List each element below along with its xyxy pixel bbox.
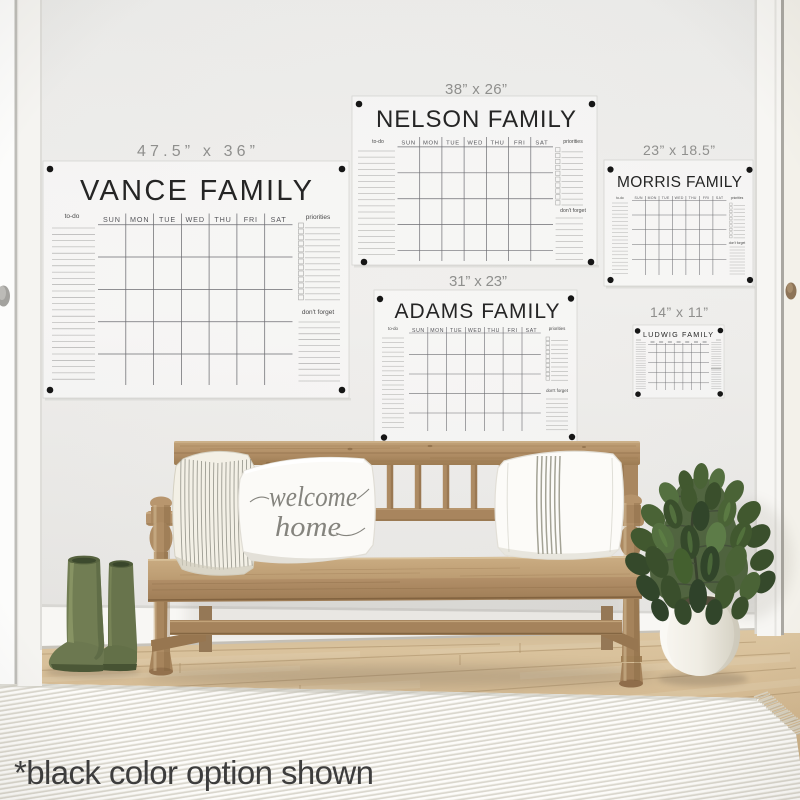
svg-text:*black color option shown: *black color option shown bbox=[14, 754, 374, 791]
